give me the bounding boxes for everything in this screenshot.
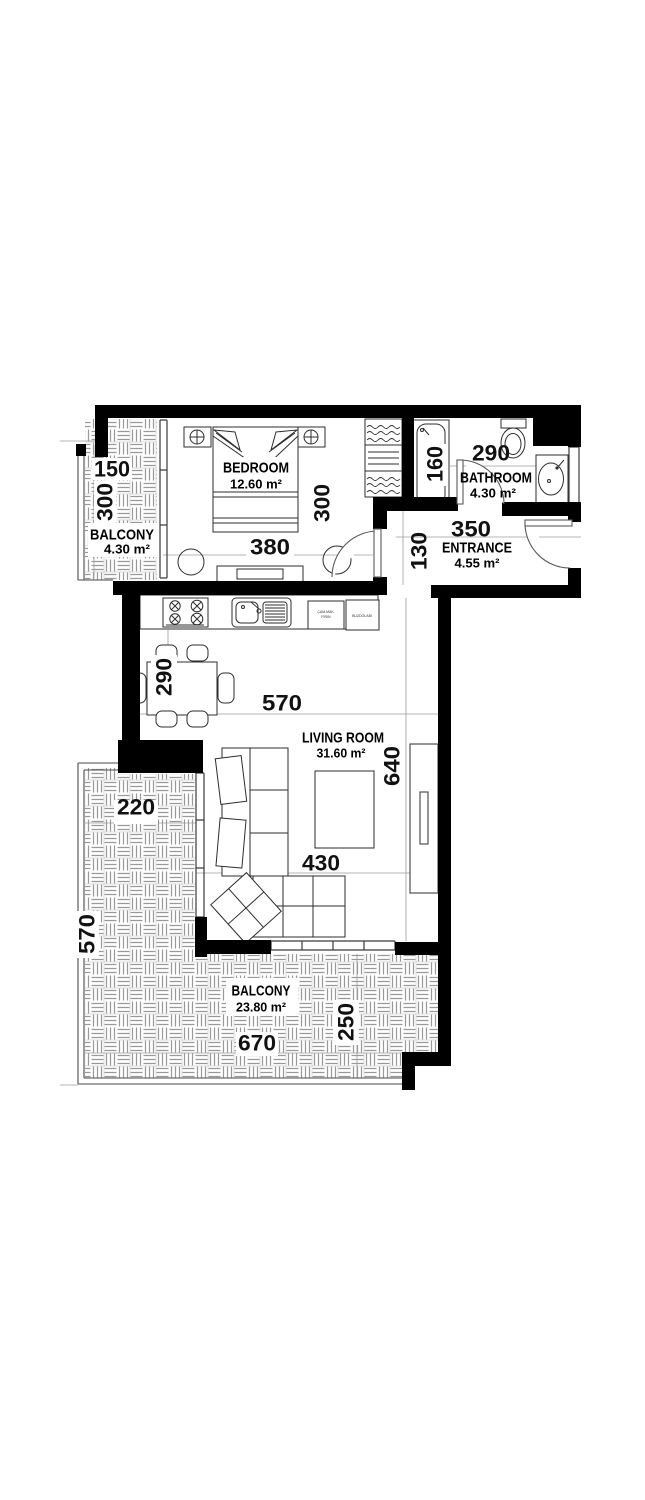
dim-entrance-width: 350 <box>451 517 491 542</box>
dim-entrance-depth: 130 <box>407 532 432 570</box>
dim-balcony-top-depth: 300 <box>93 483 118 521</box>
appliance-fridge-label: BUZDOLABI <box>352 614 372 618</box>
dim-balcony-top-width: 150 <box>94 457 130 482</box>
room-label-living: LIVING ROOM <box>302 730 384 747</box>
kitchen-sink-icon <box>232 598 291 627</box>
dim-bedroom-depth: 300 <box>310 484 335 522</box>
stove-icon <box>163 598 208 627</box>
appliance-washer-label-line2: FIRIN <box>321 615 331 619</box>
room-area-living: 31.60 m² <box>317 746 367 761</box>
dim-living-width-top: 570 <box>262 691 302 716</box>
room-label-balcony-bottom: BALCONY <box>232 983 291 1000</box>
nightstand-right <box>298 427 325 447</box>
appliance-fridge: BUZDOLABI <box>346 600 379 630</box>
room-label-entrance: ENTRANCE <box>442 540 512 557</box>
floor-plan: ÇAM.MAK. FIRIN BUZDOLABI <box>0 0 645 1500</box>
tv-unit <box>410 744 438 893</box>
nightstand-left <box>184 427 211 447</box>
dim-living-width-bottom: 430 <box>302 851 340 876</box>
wardrobe <box>365 419 402 497</box>
kitchen: ÇAM.MAK. FIRIN BUZDOLABI <box>140 595 379 630</box>
appliance-washer: ÇAM.MAK. FIRIN <box>308 601 344 629</box>
washbasin-icon <box>536 455 568 503</box>
room-label-bedroom: BEDROOM <box>223 460 289 477</box>
dim-balcony-bottom-depth: 250 <box>334 1003 359 1041</box>
dresser <box>217 566 303 582</box>
coffee-table <box>315 771 374 848</box>
room-label-bathroom: BATHROOM <box>460 470 532 487</box>
dim-dining-depth: 290 <box>152 658 177 696</box>
appliance-washer-label-line1: ÇAM.MAK. <box>317 610 334 614</box>
room-area-bathroom: 4.30 m² <box>470 486 517 501</box>
room-area-bedroom: 12.60 m² <box>230 477 283 492</box>
dim-bath-niche: 160 <box>423 446 448 482</box>
dim-balcony-bottom-width: 670 <box>238 1031 276 1056</box>
room-area-balcony-bottom: 23.80 m² <box>236 1000 287 1015</box>
room-area-balcony-top: 4.30 m² <box>104 542 151 557</box>
dim-living-depth: 640 <box>380 746 405 786</box>
room-area-entrance: 4.55 m² <box>455 556 501 571</box>
dim-bedroom-width: 380 <box>250 535 290 560</box>
dim-balcony-left-width: 220 <box>117 795 155 820</box>
dim-bathroom-width: 290 <box>472 441 510 466</box>
dim-balcony-left-depth: 570 <box>75 914 100 954</box>
